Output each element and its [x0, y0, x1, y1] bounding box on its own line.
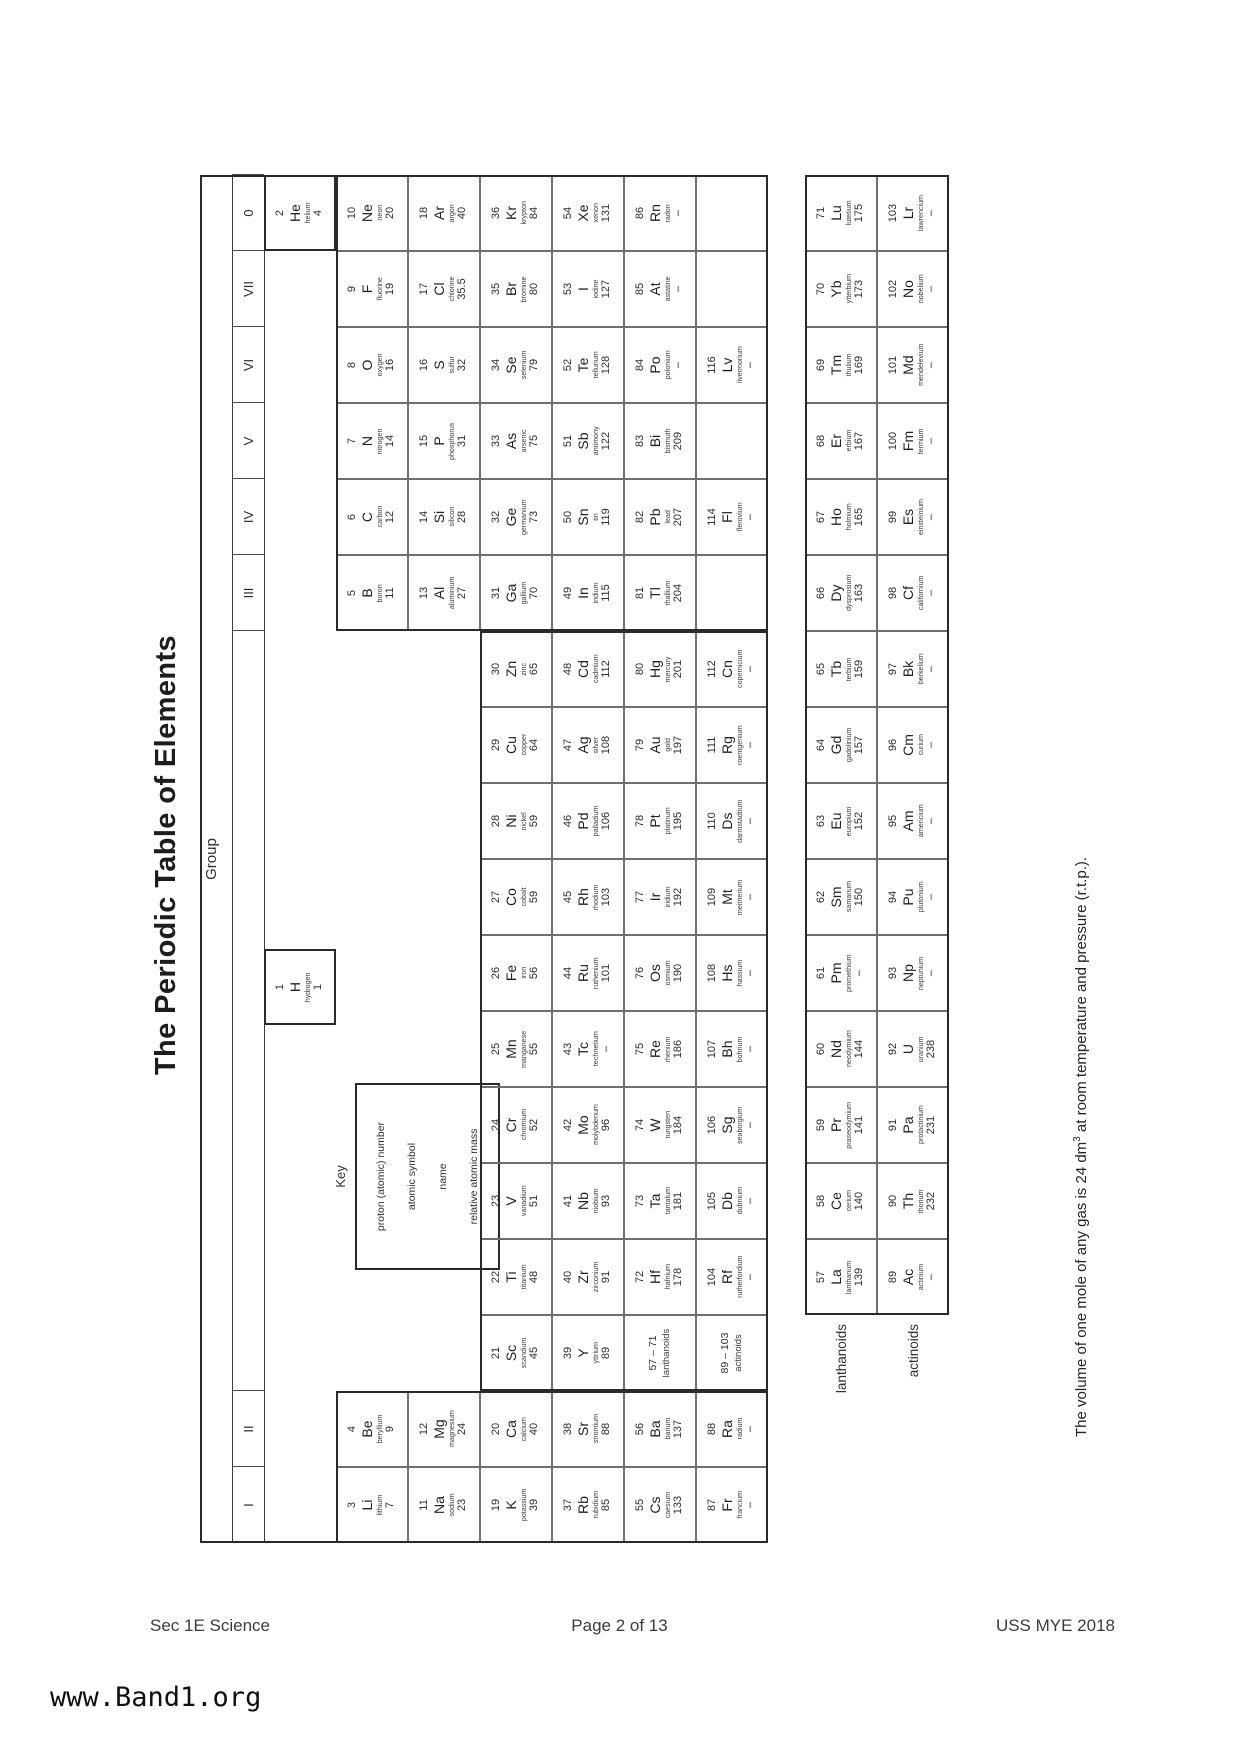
- element-cell-Y: 39Yyttrium89: [552, 1315, 624, 1391]
- element-cell-Eu: 63Eueuropium152: [805, 783, 877, 859]
- element-cell-Np: 93Npneptunium–: [877, 935, 949, 1011]
- element-cell-Hs: 108Hshassium–: [696, 935, 768, 1011]
- element-cell-He: 2Hehelium4: [264, 175, 336, 251]
- element-cell-Pu: 94Puplutonium–: [877, 859, 949, 935]
- element-cell-Xe: 54Xexenon131: [552, 175, 624, 251]
- element-cell-Ar: 18Arargon40: [408, 175, 480, 251]
- element-cell-Li: 3Lilithium7: [336, 1467, 408, 1543]
- empty-cell: [696, 251, 768, 327]
- element-cell-Tm: 69Tmthulium169: [805, 327, 877, 403]
- element-cell-Cf: 98Cfcalifornium–: [877, 555, 949, 631]
- element-cell-Sr: 38Srstrontium88: [552, 1391, 624, 1467]
- element-cell-Fm: 100Fmfermium–: [877, 403, 949, 479]
- element-cell-Er: 68Ererbium167: [805, 403, 877, 479]
- group-numeral-I: I: [232, 1467, 264, 1543]
- element-cell-K: 19Kpotassium39: [480, 1467, 552, 1543]
- element-cell-Ta: 73Tatantalum181: [624, 1163, 696, 1239]
- element-cell-Dy: 66Dydysprosium163: [805, 555, 877, 631]
- group-numeral-VII: VII: [232, 251, 264, 327]
- group-numeral-IV: IV: [232, 479, 264, 555]
- element-cell-Mo: 42Momolybdenum96: [552, 1087, 624, 1163]
- element-cell-Md: 101Mdmendelevium–: [877, 327, 949, 403]
- element-cell-Au: 79Augold197: [624, 707, 696, 783]
- element-cell-Fr: 87Frfrancium–: [696, 1467, 768, 1543]
- element-cell-Fl: 114Flflerovium–: [696, 479, 768, 555]
- element-cell-Rn: 86Rnradon–: [624, 175, 696, 251]
- element-cell-Ti: 22Tititanium48: [480, 1239, 552, 1315]
- element-cell-La: 57Lalanthanum139: [805, 1239, 877, 1315]
- key-label: Key: [333, 1083, 348, 1270]
- element-cell-Pt: 78Ptplatinum195: [624, 783, 696, 859]
- element-cell-Ac: 89Acactinium–: [877, 1239, 949, 1315]
- element-cell-Bh: 107Bhbohrium–: [696, 1011, 768, 1087]
- rtp-note-superscript: 3: [1072, 1136, 1083, 1142]
- placeholder-actinoids: 89 – 103actinoids: [696, 1315, 768, 1391]
- element-cell-Po: 84Popolonium–: [624, 327, 696, 403]
- element-cell-Es: 99Eseinsteinium–: [877, 479, 949, 555]
- group-numeral-II: II: [232, 1391, 264, 1467]
- element-cell-Nb: 41Nbniobium93: [552, 1163, 624, 1239]
- element-cell-Na: 11Nasodium23: [408, 1467, 480, 1543]
- element-cell-F: 9Ffluorine19: [336, 251, 408, 327]
- actinoids-label: actinoids: [877, 1324, 949, 1500]
- empty-cell: [696, 555, 768, 631]
- element-cell-Cu: 29Cucopper64: [480, 707, 552, 783]
- element-cell-Ru: 44Ruruthenium101: [552, 935, 624, 1011]
- element-cell-Re: 75Rerhenium186: [624, 1011, 696, 1087]
- element-cell-Tb: 65Tbterbium159: [805, 631, 877, 707]
- element-cell-Kr: 36Krkrypton84: [480, 175, 552, 251]
- element-cell-Pd: 46Pdpalladium106: [552, 783, 624, 859]
- key-line-atomic-symbol: atomic symbol: [406, 1143, 418, 1210]
- element-cell-Cm: 96Cmcurium–: [877, 707, 949, 783]
- element-cell-Ne: 10Neneon20: [336, 175, 408, 251]
- rtp-note: The volume of one mole of any gas is 24 …: [1072, 857, 1090, 1437]
- element-cell-Hf: 72Hfhafnium178: [624, 1239, 696, 1315]
- element-cell-Be: 4Beberyllium9: [336, 1391, 408, 1467]
- element-cell-Th: 90Ththorium232: [877, 1163, 949, 1239]
- element-cell-No: 102Nonobelium–: [877, 251, 949, 327]
- element-cell-Ir: 77Iriridium192: [624, 859, 696, 935]
- placeholder-lanthanoids: 57 – 71lanthanoids: [624, 1315, 696, 1391]
- element-cell-Cl: 17Clchlorine35.5: [408, 251, 480, 327]
- element-cell-Ra: 88Raradium–: [696, 1391, 768, 1467]
- watermark: www.Band1.org: [50, 1682, 261, 1713]
- group-numeral-VI: VI: [232, 327, 264, 403]
- element-cell-Ce: 58Cecerium140: [805, 1163, 877, 1239]
- element-cell-Os: 76Ososmium190: [624, 935, 696, 1011]
- empty-cell: [696, 403, 768, 479]
- element-cell-Am: 95Amamericium–: [877, 783, 949, 859]
- element-cell-W: 74Wtungsten184: [624, 1087, 696, 1163]
- element-cell-Pm: 61Pmpromethium–: [805, 935, 877, 1011]
- element-cell-Ds: 110Dsdarmstadtium–: [696, 783, 768, 859]
- element-cell-Cr: 24Crchromium52: [480, 1087, 552, 1163]
- element-cell-Pr: 59Prpraseodymium141: [805, 1087, 877, 1163]
- element-cell-N: 7Nnitrogen14: [336, 403, 408, 479]
- element-cell-O: 8Ooxygen16: [336, 327, 408, 403]
- element-cell-B: 5Bboron11: [336, 555, 408, 631]
- element-cell-Pb: 82Pblead207: [624, 479, 696, 555]
- element-cell-Br: 35Brbromine80: [480, 251, 552, 327]
- element-cell-Lv: 116Lvlivermorium–: [696, 327, 768, 403]
- element-cell-U: 92Uuranium238: [877, 1011, 949, 1087]
- element-cell-Tc: 43Tctechnetium–: [552, 1011, 624, 1087]
- element-cell-S: 16Ssulfur32: [408, 327, 480, 403]
- element-cell-V: 23Vvanadium51: [480, 1163, 552, 1239]
- element-cell-Hg: 80Hgmercury201: [624, 631, 696, 707]
- element-cell-Sn: 50Sntin119: [552, 479, 624, 555]
- element-cell-Zr: 40Zrzirconium91: [552, 1239, 624, 1315]
- rtp-note-text: The volume of one mole of any gas is 24 …: [1073, 1142, 1090, 1437]
- element-cell-Gd: 64Gdgadolinium157: [805, 707, 877, 783]
- element-cell-Ga: 31Gagallium70: [480, 555, 552, 631]
- element-cell-Rb: 37Rbrubidium85: [552, 1467, 624, 1543]
- element-cell-Bi: 83Bibismuth209: [624, 403, 696, 479]
- element-cell-P: 15Pphosphorus31: [408, 403, 480, 479]
- element-cell-Cd: 48Cdcadmium112: [552, 631, 624, 707]
- element-cell-Tl: 81Tlthallium204: [624, 555, 696, 631]
- page-footer: Page 2 of 13 Sec 1E Science USS MYE 2018: [0, 1616, 1239, 1640]
- header-band-line-bottom: [264, 175, 265, 1543]
- element-cell-Sb: 51Sbantimony122: [552, 403, 624, 479]
- key-box: proton (atomic) number atomic symbol nam…: [355, 1083, 500, 1270]
- element-cell-Mt: 109Mtmeitnerium–: [696, 859, 768, 935]
- element-cell-Ge: 32Gegermanium73: [480, 479, 552, 555]
- element-cell-Bk: 97Bkberkelium–: [877, 631, 949, 707]
- element-cell-Lr: 103Lrlawrencium–: [877, 175, 949, 251]
- page-title: The Periodic Table of Elements: [150, 155, 183, 1555]
- footer-exam: USS MYE 2018: [996, 1616, 1115, 1636]
- element-cell-Ni: 28Ninickel59: [480, 783, 552, 859]
- element-cell-Ca: 20Cacalcium40: [480, 1391, 552, 1467]
- element-cell-Si: 14Sisilicon28: [408, 479, 480, 555]
- element-cell-Sg: 106Sgseaborgium–: [696, 1087, 768, 1163]
- group-header-label: Group: [203, 175, 220, 1543]
- key-line-relative-atomic-mass: relative atomic mass: [468, 1129, 480, 1225]
- element-cell-Db: 105Dbdubnium–: [696, 1163, 768, 1239]
- key-line-name: name: [437, 1163, 449, 1189]
- element-cell-H: 1Hhydrogen1: [264, 949, 336, 1025]
- group-numeral-III: III: [232, 555, 264, 631]
- table-canvas: The Periodic Table of Elements Group Key…: [150, 155, 1110, 1555]
- element-cell-Pa: 91Paprotactinium231: [877, 1087, 949, 1163]
- element-cell-Rg: 111Rgroentgenium–: [696, 707, 768, 783]
- element-cell-Sm: 62Smsamarium150: [805, 859, 877, 935]
- element-cell-Se: 34Seselenium79: [480, 327, 552, 403]
- element-cell-Zn: 30Znzinc65: [480, 631, 552, 707]
- element-cell-Ho: 67Hoholmium165: [805, 479, 877, 555]
- element-cell-Ag: 47Agsilver108: [552, 707, 624, 783]
- element-cell-Fe: 26Feiron56: [480, 935, 552, 1011]
- element-cell-Yb: 70Ybytterbium173: [805, 251, 877, 327]
- element-cell-Cn: 112Cncopernicium–: [696, 631, 768, 707]
- element-cell-Te: 52Tetellurium128: [552, 327, 624, 403]
- element-cell-Sc: 21Scscandium45: [480, 1315, 552, 1391]
- element-cell-Mg: 12Mgmagnesium24: [408, 1391, 480, 1467]
- element-cell-Lu: 71Lulutetium175: [805, 175, 877, 251]
- rtp-note-text-2: at room temperature and pressure (r.t.p.…: [1073, 857, 1090, 1136]
- group-numeral-0: 0: [232, 175, 264, 251]
- group-numeral-V: V: [232, 403, 264, 479]
- key-line-proton-number: proton (atomic) number: [375, 1122, 387, 1231]
- element-cell-Co: 27Cocobalt59: [480, 859, 552, 935]
- element-cell-In: 49Inindium115: [552, 555, 624, 631]
- element-cell-I: 53Iiodine127: [552, 251, 624, 327]
- element-cell-Rh: 45Rhrhodium103: [552, 859, 624, 935]
- element-cell-Nd: 60Ndneodymium144: [805, 1011, 877, 1087]
- rotated-periodic-table: The Periodic Table of Elements Group Key…: [150, 155, 1110, 1555]
- element-cell-C: 6Ccarbon12: [336, 479, 408, 555]
- element-cell-At: 85Atastatine–: [624, 251, 696, 327]
- element-cell-Cs: 55Cscaesium133: [624, 1467, 696, 1543]
- element-cell-As: 33Asarsenic75: [480, 403, 552, 479]
- footer-course: Sec 1E Science: [150, 1616, 270, 1636]
- lanthanoids-label: lanthanoids: [805, 1324, 877, 1500]
- element-cell-Ba: 56Babarium137: [624, 1391, 696, 1467]
- element-cell-Rf: 104Rfrutherfordium–: [696, 1239, 768, 1315]
- element-cell-Al: 13Alaluminium27: [408, 555, 480, 631]
- element-cell-Mn: 25Mnmanganese55: [480, 1011, 552, 1087]
- empty-cell: [696, 175, 768, 251]
